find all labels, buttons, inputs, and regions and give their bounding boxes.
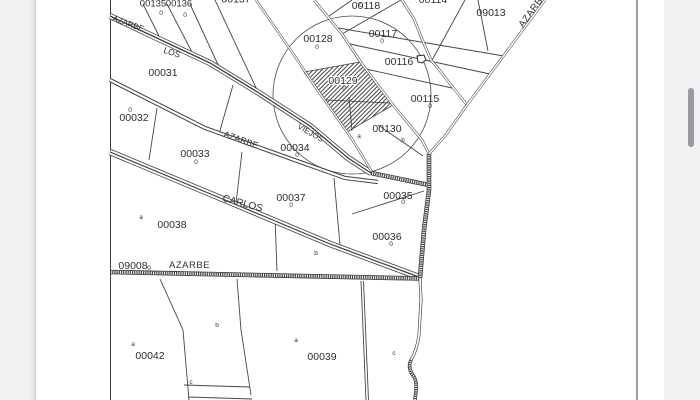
svg-text:AZARBE: AZARBE xyxy=(517,0,550,30)
svg-text:00116: 00116 xyxy=(385,56,414,68)
svg-text:AZARBE: AZARBE xyxy=(169,260,210,271)
svg-text:0: 0 xyxy=(401,199,405,206)
svg-text:0: 0 xyxy=(315,44,319,51)
svg-text:09008: 09008 xyxy=(118,260,147,272)
svg-text:00137: 00137 xyxy=(221,0,250,6)
svg-text:0: 0 xyxy=(295,152,299,159)
svg-text:00114: 00114 xyxy=(419,0,448,6)
svg-text:0: 0 xyxy=(289,202,293,209)
svg-text:b: b xyxy=(215,322,219,329)
svg-text:a: a xyxy=(357,133,361,140)
svg-text:CARLOS: CARLOS xyxy=(221,193,264,214)
svg-text:00042: 00042 xyxy=(135,350,164,362)
svg-text:b: b xyxy=(314,250,318,257)
svg-text:0: 0 xyxy=(342,85,346,92)
svg-text:a: a xyxy=(294,337,298,344)
svg-text:00130: 00130 xyxy=(372,123,401,135)
svg-text:00038: 00038 xyxy=(157,219,186,231)
svg-text:0: 0 xyxy=(128,107,132,114)
svg-text:00135: 00135 xyxy=(140,0,166,10)
svg-text:00115: 00115 xyxy=(411,93,440,105)
svg-text:0: 0 xyxy=(194,159,198,166)
svg-text:a: a xyxy=(139,214,143,221)
svg-text:a: a xyxy=(131,341,135,348)
svg-text:00039: 00039 xyxy=(307,351,336,363)
svg-text:AZARBE: AZARBE xyxy=(111,14,145,34)
svg-text:00032: 00032 xyxy=(119,112,148,124)
svg-text:00136: 00136 xyxy=(166,0,192,10)
svg-text:0: 0 xyxy=(428,103,432,110)
svg-text:0: 0 xyxy=(389,241,393,248)
svg-text:09013: 09013 xyxy=(476,7,505,19)
svg-text:00036: 00036 xyxy=(372,231,401,243)
svg-text:0: 0 xyxy=(147,265,151,272)
svg-text:0: 0 xyxy=(183,12,187,19)
svg-text:0: 0 xyxy=(159,10,163,17)
svg-text:b: b xyxy=(401,137,405,144)
svg-text:0: 0 xyxy=(380,38,384,45)
svg-text:AZARBE: AZARBE xyxy=(222,129,259,151)
svg-text:c: c xyxy=(392,350,396,357)
svg-text:00031: 00031 xyxy=(148,67,177,79)
svg-text:0: 0 xyxy=(359,2,363,9)
svg-text:00035: 00035 xyxy=(383,190,412,202)
svg-text:00118: 00118 xyxy=(352,0,381,12)
